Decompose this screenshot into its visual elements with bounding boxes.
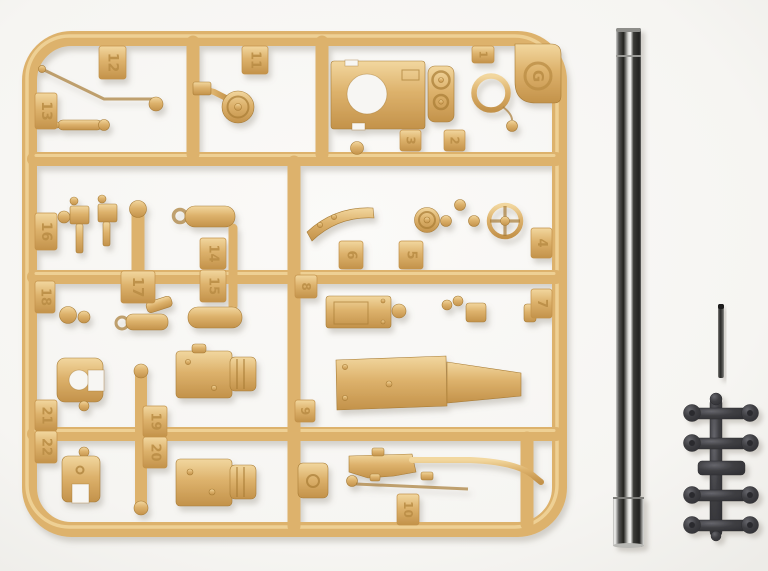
part-number-22: 22 [39, 438, 54, 456]
part-number-3: 3 [404, 136, 418, 144]
rod-fitting-block [466, 303, 486, 322]
pin-shaft [718, 304, 724, 378]
hinge-block-2 [98, 204, 117, 222]
mantlet-collar-upper [230, 357, 256, 391]
machinegun-ball [347, 476, 358, 487]
polycap-bar-top-cap [710, 393, 722, 405]
hatch-stub-ball [351, 142, 364, 155]
polycap-2-dimple [747, 410, 753, 416]
part-number-21: 21 [39, 406, 54, 424]
machinegun-tab-2 [421, 472, 433, 480]
nozzle-body-part [126, 314, 168, 330]
tee-ball-top [455, 200, 466, 211]
mantlet-l-rivet1 [187, 469, 193, 475]
plate-rivet-2 [381, 320, 385, 324]
blower-box [193, 82, 211, 95]
hinge-knob-2 [98, 195, 106, 203]
sprue-letter-mark: G [529, 70, 547, 82]
machinegun-tab-1 [370, 474, 380, 481]
rack-rivet-1 [317, 222, 322, 227]
pulley-hub [424, 217, 430, 223]
mantlet-l-rivet2 [209, 489, 215, 495]
hatch-notch-top [345, 60, 358, 66]
wheel-hub [501, 217, 510, 226]
mantlet-block-upper-part [176, 351, 232, 398]
part-number-7: 7 [534, 299, 549, 308]
rod-knob-2 [453, 296, 463, 306]
stub-rod-cap [149, 97, 163, 111]
part-number-13: 13 [38, 101, 54, 120]
polycap-7-dimple [689, 522, 695, 528]
shield-square-part [298, 463, 328, 498]
mantlet-bump-upper [192, 344, 206, 353]
mantlet-collar-lower [230, 465, 256, 499]
part-number-4: 4 [534, 238, 549, 247]
polycap-4-dimple [747, 440, 753, 446]
part-number-19: 19 [148, 412, 163, 430]
pin-tip [718, 304, 724, 309]
plate-rivet-1 [381, 299, 385, 303]
clevis-opening [88, 370, 104, 391]
part-number-1: 1 [477, 51, 490, 59]
elbow-ball-2 [78, 311, 90, 323]
mg-barrel-part [58, 120, 102, 130]
cradle-hole-1 [342, 364, 347, 369]
mantlet-u-rivet2 [211, 385, 216, 390]
part-number-2: 2 [448, 136, 462, 144]
clevis-hole [69, 370, 89, 390]
cradle-blip [386, 381, 392, 387]
runner-hinge-cap [130, 201, 147, 218]
periscope-gear-1-hub [439, 78, 444, 83]
part-number-11: 11 [248, 51, 263, 69]
metal-gun-barrel [613, 28, 644, 548]
blower-fan-hub [235, 104, 242, 111]
part-number-9: 9 [298, 407, 312, 415]
hinge-knob-1 [70, 197, 78, 205]
part-number-12: 12 [105, 53, 121, 72]
hatch-opening [347, 74, 387, 114]
link-ball-top [79, 401, 89, 411]
machinegun-sight [372, 448, 384, 456]
barrel-breech-sleeve [613, 497, 644, 547]
part-number-14: 14 [206, 244, 221, 262]
part-number-20: 20 [148, 443, 163, 461]
rack-rivet-2 [331, 214, 336, 219]
hinge-strap-1 [76, 224, 83, 253]
hinge-block-1 [70, 206, 89, 224]
part-number-6: 6 [344, 250, 359, 259]
rod-knob-1 [442, 300, 452, 310]
kit-sprue-photo-svg: 1 2 3 4 5 6 7 8 9 10 11 12 13 14 15 16 1… [0, 0, 768, 571]
barrel-shaft [616, 28, 641, 497]
barrel-muzzle-tip [616, 28, 641, 32]
part-number-10: 10 [401, 501, 415, 518]
polycap-3-dimple [689, 440, 695, 446]
u-bracket-slot [72, 484, 89, 503]
periscope-gear-2-hub [439, 100, 443, 104]
part-number-18: 18 [38, 288, 53, 306]
mantlet-block-lower-part [176, 459, 232, 506]
mg-ball-end [99, 120, 110, 131]
barrel-bottom-edge [613, 543, 644, 548]
model-kit-parts-photo: 1 2 3 4 5 6 7 8 9 10 11 12 13 14 15 16 1… [0, 0, 768, 571]
polycap-1-dimple [689, 410, 695, 416]
polycap-bar-bottom-cap [711, 531, 721, 541]
part-number-5: 5 [404, 250, 419, 259]
link-ball-bottom [79, 447, 89, 457]
mantlet-u-rivet1 [185, 359, 190, 364]
polycap-6-dimple [747, 492, 753, 498]
runner-bl-cap-bottom [134, 501, 148, 515]
tee-ball-right [469, 216, 480, 227]
recoil-cylinder-part [185, 206, 235, 227]
metal-pin [718, 304, 724, 378]
runner-bl-cap-top [134, 364, 148, 378]
shackle-pin-drop [507, 121, 518, 132]
polycap-5-dimple [689, 492, 695, 498]
elbow-ball-1 [60, 307, 77, 324]
tee-ball-left [441, 216, 452, 227]
part-number-17: 17 [129, 277, 147, 298]
polycap-gate-stub [698, 461, 745, 475]
polycap-8-dimple [747, 522, 753, 528]
cradle-hole-2 [342, 395, 347, 400]
recuperator-cylinder-part [188, 307, 242, 328]
part-number-15: 15 [206, 277, 221, 295]
part-number-8: 8 [299, 282, 313, 290]
part-number-16: 16 [38, 222, 54, 241]
antenna-base [38, 65, 45, 72]
hinge-strap-2 [103, 222, 110, 246]
